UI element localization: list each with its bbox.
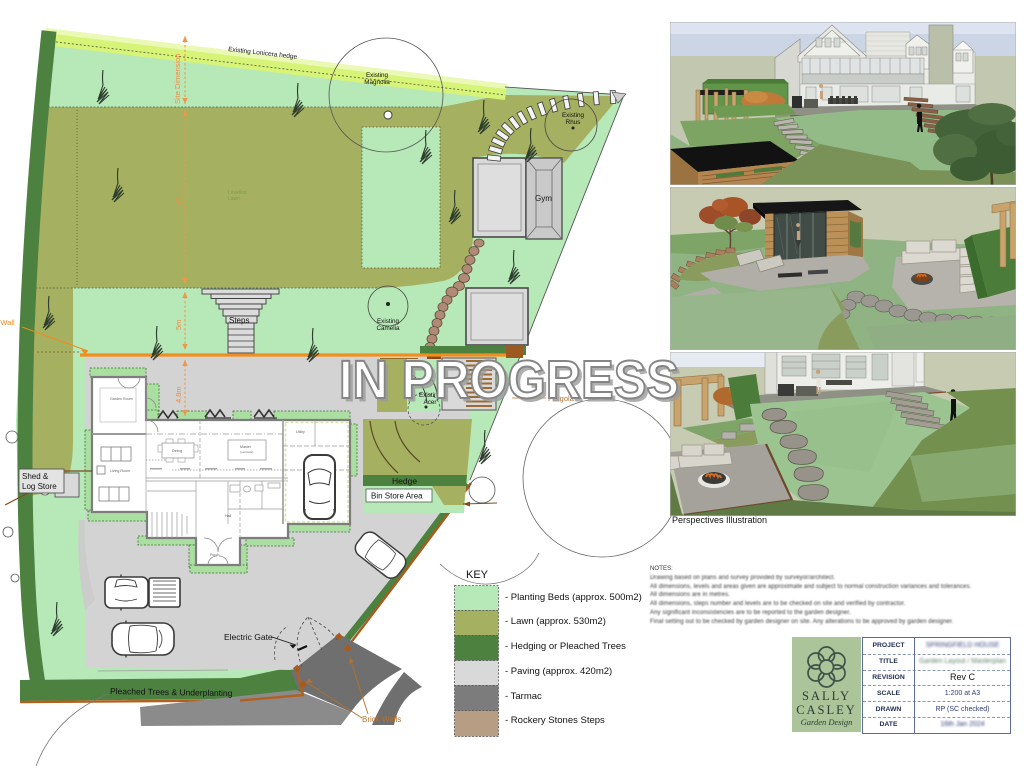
svg-text:Existing: Existing — [562, 112, 585, 119]
svg-text:Dining: Dining — [172, 449, 182, 453]
svg-text:Hedge: Hedge — [392, 476, 417, 486]
svg-text:Living Room: Living Room — [110, 469, 130, 473]
svg-text:Pleached Trees & Underplanting: Pleached Trees & Underplanting — [110, 686, 233, 698]
svg-text:4.8m: 4.8m — [174, 386, 183, 403]
svg-text:Lawn: Lawn — [228, 196, 240, 202]
svg-text:Porch: Porch — [210, 553, 219, 557]
svg-text:Master: Master — [240, 445, 252, 449]
svg-text:Existing Wall: Existing Wall — [0, 318, 15, 327]
svg-text:Existing: Existing — [377, 318, 400, 325]
svg-text:Gym: Gym — [535, 194, 552, 203]
svg-text:Rhus: Rhus — [566, 119, 581, 126]
svg-text:Garden Room: Garden Room — [110, 397, 133, 401]
svg-text:Electric Gate: Electric Gate — [224, 632, 273, 642]
svg-text:Brick Walls: Brick Walls — [362, 715, 401, 724]
svg-text:5m: 5m — [174, 320, 183, 330]
svg-text:Camelia: Camelia — [376, 325, 400, 332]
svg-text:Existing: Existing — [366, 72, 389, 79]
svg-text:14m: 14m — [174, 190, 183, 205]
svg-text:Utility: Utility — [296, 430, 305, 434]
svg-text:Hall: Hall — [225, 514, 231, 518]
svg-text:IN PROGRESS: IN PROGRESS — [339, 350, 679, 410]
svg-text:Magnolia: Magnolia — [364, 79, 390, 86]
svg-text:Log Store: Log Store — [22, 482, 57, 491]
svg-text:(+ensuite): (+ensuite) — [240, 450, 253, 454]
svg-text:Shed &: Shed & — [22, 472, 49, 481]
svg-text:Site Dimension: Site Dimension — [173, 54, 182, 104]
svg-text:Steps: Steps — [229, 316, 249, 325]
svg-text:Bin Store Area: Bin Store Area — [371, 492, 423, 501]
